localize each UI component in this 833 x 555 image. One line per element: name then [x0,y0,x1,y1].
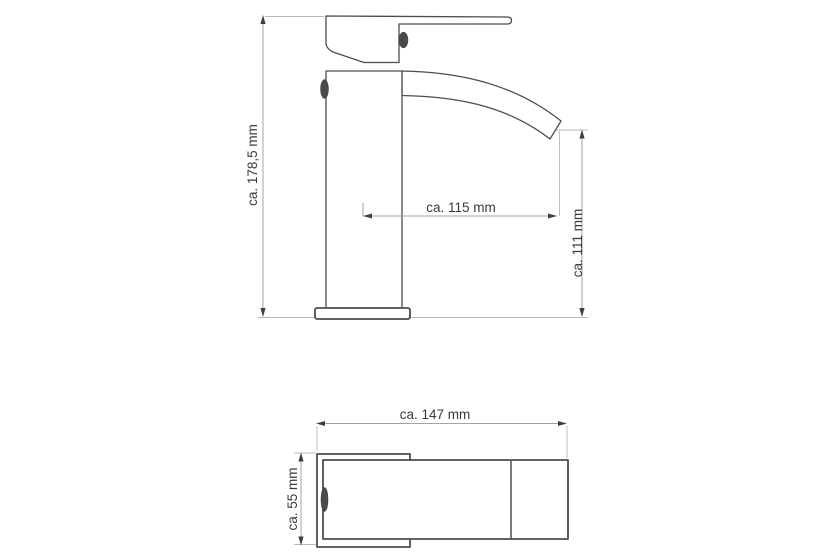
dim-label-spout-reach: ca. 115 mm [426,200,496,215]
faucet-spout [402,71,561,139]
arrowhead-right-icon [548,214,557,219]
dim-label-outlet-height: ca. 111 mm [570,209,585,278]
arrowhead-up-icon [260,15,265,24]
dimension-total-depth: ca. 147 mm [316,407,567,458]
top-view: ca. 147 mm ca. 55 mm [285,407,568,547]
dimension-outlet-height: ca. 111 mm [556,130,588,318]
dim-label-total-height: ca. 178,5 mm [245,124,260,206]
arrowhead-right-icon [558,421,567,426]
dim-label-total-depth: ca. 147 mm [400,407,471,422]
diagram-page: ca. 178,5 mm ca. 115 mm ca. 111 mm [0,0,833,555]
dimension-base-width: ca. 55 mm [285,453,316,546]
dimension-total-height: ca. 178,5 mm [245,15,324,317]
rear-screw-icon [321,488,328,512]
body-side-screw-icon [321,80,329,99]
dim-label-base-width: ca. 55 mm [285,467,300,530]
side-view: ca. 178,5 mm ca. 115 mm ca. 111 mm [245,15,588,319]
arrowhead-up-icon [579,130,584,139]
arrowhead-left-icon [316,421,325,426]
faucet-body [326,71,402,308]
arrowhead-down-icon [260,308,265,317]
arrowhead-up-icon [298,453,303,462]
faucet-lever-handle [326,16,512,63]
faucet-base-plate [315,308,410,319]
faucet-technical-drawing: ca. 178,5 mm ca. 115 mm ca. 111 mm [0,0,833,555]
body-spout-top-view [323,460,568,539]
handle-pivot-screw-icon [399,32,408,48]
arrowhead-down-icon [579,308,584,317]
